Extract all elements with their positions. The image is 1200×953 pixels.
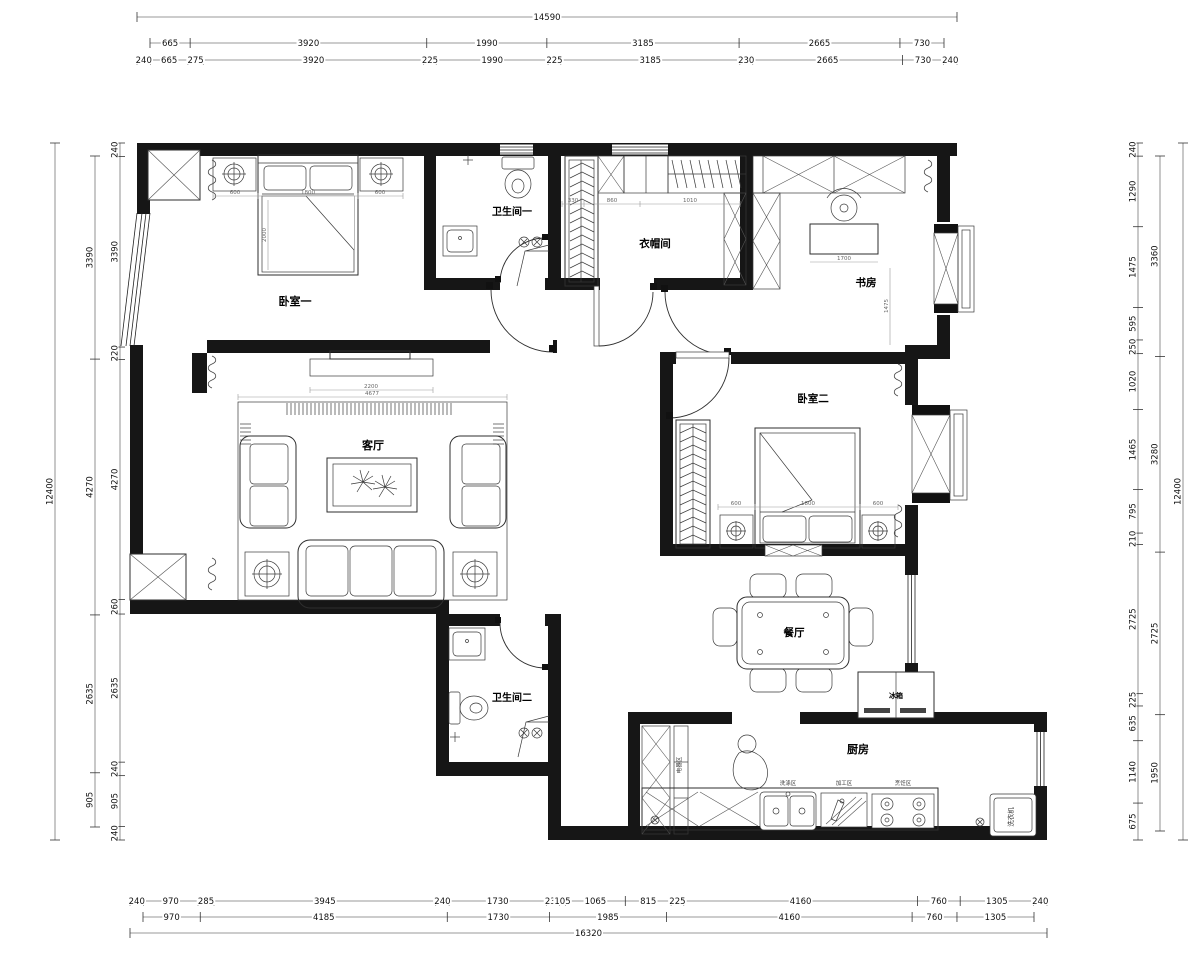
dim-label: 1730 xyxy=(487,897,509,907)
room-label-bedroom1: 卧室一 xyxy=(279,294,312,308)
dim-chain-bottom-total: 16320 xyxy=(130,928,1047,940)
dim-label: 815 xyxy=(640,897,656,907)
dim-label: 240 xyxy=(111,825,121,841)
dim-label: 2665 xyxy=(809,39,831,49)
dim-label: 2635 xyxy=(86,683,96,705)
dim-label: 240 xyxy=(1032,897,1048,907)
dim-label: 240 xyxy=(111,142,121,158)
dim-chain-left-inner: 240339022042702602635240905240 xyxy=(108,140,125,842)
idim-label: 600 xyxy=(375,190,386,196)
dim-label: 225 xyxy=(669,897,685,907)
rep-mark xyxy=(570,253,594,259)
label-appliance-zone: 电器区 xyxy=(675,756,683,773)
dim-label: 225 xyxy=(546,56,562,66)
dim-label: 275 xyxy=(187,56,203,66)
dim-label: 210 xyxy=(1129,531,1139,547)
rug-fringe-top xyxy=(287,403,451,415)
dim-label: 4160 xyxy=(779,913,801,923)
room-label-bedroom2: 卧室二 xyxy=(797,392,829,405)
dim-label: 730 xyxy=(915,56,931,66)
rug-fringe-right xyxy=(493,424,504,444)
rep-mark xyxy=(570,217,594,223)
rep-mark xyxy=(570,271,594,277)
label-fridge: 冰箱 xyxy=(889,691,903,700)
dim-label: 240 xyxy=(1129,141,1139,157)
dim-chain-bottom-row2: 97041851730198541607601305 xyxy=(143,912,1034,924)
room-label-bathroom2: 卫生间二 xyxy=(492,691,532,704)
idim-label: 860 xyxy=(607,198,618,204)
idim-label: 1010 xyxy=(683,198,697,204)
label-wash-zone: 洗涤区 xyxy=(780,779,797,787)
bedroom1-furniture xyxy=(213,155,403,275)
room-label-dining: 餐厅 xyxy=(783,626,805,639)
doors xyxy=(486,234,731,670)
dim-label: 14590 xyxy=(533,13,560,23)
dim-label: 260 xyxy=(111,599,121,615)
dim-label: 1475 xyxy=(1129,256,1139,278)
dim-label: 1020 xyxy=(1129,371,1139,393)
dim-label: 1140 xyxy=(1129,761,1139,783)
dim-label: 970 xyxy=(164,913,180,923)
dim-label: 240 xyxy=(129,897,145,907)
idim-label: 1800 xyxy=(801,501,815,507)
dim-label: 250 xyxy=(1129,339,1139,355)
rep-mark xyxy=(570,244,594,250)
dim-label: 2725 xyxy=(1151,623,1161,645)
rep-mark xyxy=(570,262,594,268)
rep-mark xyxy=(570,181,594,187)
dim-label: 16320 xyxy=(575,929,602,939)
dim-label: 2665 xyxy=(817,56,839,66)
label-cook-zone: 烹饪区 xyxy=(895,779,912,787)
dim-label: 1305 xyxy=(986,897,1008,907)
dim-label: 240 xyxy=(111,761,121,777)
label-washer: 洗衣机 xyxy=(1006,807,1015,827)
dim-label: 1990 xyxy=(476,39,498,49)
dim-label: 1990 xyxy=(481,56,503,66)
dim-label: 12400 xyxy=(1174,478,1184,505)
cloakroom-furniture xyxy=(565,156,746,286)
dim-label: 1730 xyxy=(488,913,510,923)
dim-label: 225 xyxy=(1129,692,1139,708)
dim-chain-left-total: 12400 xyxy=(43,143,60,840)
room-labels: 卧室一 卫生间一 衣帽间 书房 客厅 卧室二 餐厅 卫生间二 厨房 冰箱 洗衣机… xyxy=(279,205,1016,827)
dim-label: 3280 xyxy=(1151,443,1161,465)
dim-chain-top-total: 14590 xyxy=(137,12,957,24)
rep-mark xyxy=(570,172,594,178)
rep-mark xyxy=(570,163,594,169)
dim-label: 225 xyxy=(422,56,438,66)
dim-label: 665 xyxy=(161,56,177,66)
dim-label: 240 xyxy=(942,56,958,66)
floorplan-page: 600 1800 600 2000 600 1800 600 2200 4677… xyxy=(0,0,1200,953)
dim-label: 1985 xyxy=(597,913,619,923)
dim-label: 905 xyxy=(86,792,96,808)
dim-label: 105 xyxy=(554,897,570,907)
room-label-bathroom1: 卫生间一 xyxy=(492,205,532,218)
dim-label: 905 xyxy=(111,793,121,809)
rep-mark xyxy=(570,208,594,214)
study-furniture xyxy=(753,156,905,289)
rep-mark xyxy=(570,190,594,196)
idim-label: 600 xyxy=(731,501,742,507)
dim-chain-top-row2: 6653920199031852665730 xyxy=(150,38,944,50)
dim-label: 240 xyxy=(136,56,152,66)
room-label-study: 书房 xyxy=(856,276,877,289)
rep-mark xyxy=(570,226,594,232)
label-prep-zone: 加工区 xyxy=(836,779,853,787)
dim-label: 1065 xyxy=(585,897,607,907)
dim-chain-top-row3: 2406652753920225199022531852302665730240 xyxy=(134,55,959,67)
dim-label: 3390 xyxy=(86,247,96,269)
dim-label: 1290 xyxy=(1129,181,1139,203)
bathroom1-furniture xyxy=(443,155,549,286)
dim-label: 3920 xyxy=(303,56,325,66)
chevron-hatch xyxy=(570,163,594,277)
room-label-living: 客厅 xyxy=(361,438,384,452)
dim-label: 4270 xyxy=(86,476,96,498)
dim-label: 285 xyxy=(198,897,214,907)
dim-label: 635 xyxy=(1129,715,1139,731)
dim-label: 665 xyxy=(162,39,178,49)
idim-label: 2000 xyxy=(262,228,268,242)
dim-chain-left-mid: 339042702635905 xyxy=(83,156,100,827)
dim-label: 1950 xyxy=(1151,762,1161,784)
idim-label: 330 xyxy=(568,198,579,204)
floorplan-canvas: 600 1800 600 2000 600 1800 600 2200 4677… xyxy=(0,0,1200,953)
dim-label: 230 xyxy=(738,56,754,66)
dim-label: 3920 xyxy=(298,39,320,49)
dim-label: 4185 xyxy=(313,913,335,923)
dim-label: 595 xyxy=(1129,316,1139,332)
dim-label: 12400 xyxy=(46,478,56,505)
dim-label: 970 xyxy=(163,897,179,907)
idim-label: 4677 xyxy=(365,391,379,397)
dim-label: 760 xyxy=(926,913,942,923)
dim-label: 3185 xyxy=(632,39,654,49)
dim-label: 730 xyxy=(914,39,930,49)
dim-label: 675 xyxy=(1129,813,1139,829)
idim-label: 1800 xyxy=(301,190,315,196)
rep-mark xyxy=(570,235,594,241)
dim-label: 2725 xyxy=(1129,608,1139,630)
dim-label: 1305 xyxy=(985,913,1007,923)
dim-label: 795 xyxy=(1129,503,1139,519)
dim-label: 4270 xyxy=(111,469,121,491)
room-label-kitchen: 厨房 xyxy=(847,742,869,756)
idim-label: 1475 xyxy=(884,299,890,313)
dim-label: 1465 xyxy=(1129,439,1139,461)
dim-label: 3390 xyxy=(111,241,121,263)
dim-label: 760 xyxy=(931,897,947,907)
dim-chain-right-inner: 2401290147559525010201465795210272522563… xyxy=(1126,140,1143,840)
idim-label: 600 xyxy=(873,501,884,507)
dim-chain-right-mid: 3360328027251950 xyxy=(1148,156,1165,831)
dim-label: 240 xyxy=(434,897,450,907)
dim-label: 220 xyxy=(111,345,121,361)
dim-label: 3185 xyxy=(639,56,661,66)
dim-label: 3945 xyxy=(314,897,336,907)
room-label-cloakroom: 衣帽间 xyxy=(639,237,671,250)
dim-chain-right-total: 12400 xyxy=(1171,143,1188,840)
dim-label: 3360 xyxy=(1151,245,1161,267)
idim-label: 600 xyxy=(230,190,241,196)
idim-label: 1700 xyxy=(837,256,851,262)
idim-label: 2200 xyxy=(364,384,378,390)
bedroom2-furniture xyxy=(676,420,895,556)
dim-label: 4160 xyxy=(790,897,812,907)
dim-label: 2635 xyxy=(111,677,121,699)
dim-chain-bottom-row1: 2409702853945240173023510510658152254160… xyxy=(127,896,1049,908)
